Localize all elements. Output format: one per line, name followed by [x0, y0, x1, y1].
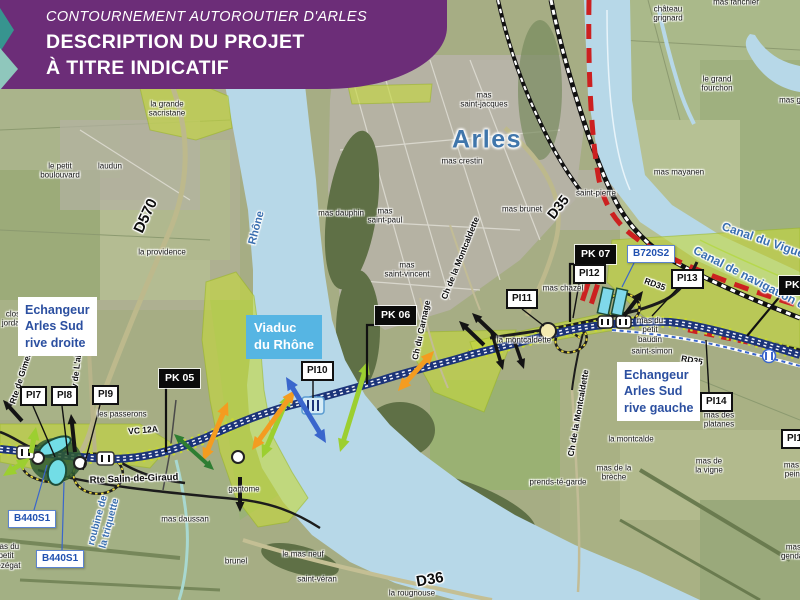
water-label-rh-ne: Rhône — [246, 210, 267, 246]
place-label-mas-du-petit-tr-z-gat: mas du petit trézégat — [0, 542, 20, 570]
place-label-mas-daussan: mas daussan — [161, 514, 209, 523]
road-label-ch-de-la-montcaldette: Ch de la Montcaldette — [439, 215, 481, 300]
road-label-d36: D36 — [415, 569, 445, 591]
pk-06-marker: PK 06 — [375, 306, 416, 325]
place-label-mas-brunet: mas brunet — [502, 204, 542, 213]
viaduc-du-rhone: Viaduc du Rhône — [246, 315, 322, 359]
echangeur-arles-sud-rive-gauche: Echangeur Arles Sud rive gauche — [617, 362, 700, 421]
place-label-saint-simon: saint-simon — [632, 346, 673, 355]
place-label-le-grand-fourchon: le grand fourchon — [701, 75, 732, 94]
place-label-mas-dauphin: mas dauphin — [318, 208, 364, 217]
place-label-la-providence: la providence — [138, 247, 186, 256]
road-label-d570: D570 — [130, 196, 161, 236]
pi12-marker: PI12 — [573, 264, 606, 284]
place-label-mas-crestin: mas crestin — [442, 156, 483, 165]
place-label-mas-g: mas g — [779, 95, 800, 104]
place-label-mas-chazel: mas chazel — [543, 283, 583, 292]
place-label-brunel: brunel — [225, 556, 247, 565]
label-layer: mas saint-jacquesmas crestinsaint-pierre… — [0, 0, 800, 600]
title-banner: CONTOURNEMENT AUTOROUTIER D'ARLES DESCRI… — [0, 0, 447, 89]
place-label-gantome: gantome — [228, 484, 259, 493]
city-label-arles: Arles — [452, 126, 522, 155]
place-label-mas-du-peintre: mas du peintre — [784, 461, 800, 480]
project-map-screenshot: mas saint-jacquesmas crestinsaint-pierre… — [0, 0, 800, 600]
banner-subtitle: CONTOURNEMENT AUTOROUTIER D'ARLES — [46, 9, 447, 25]
water-label-canal-du-vigueirat: Canal du Vigueirat — [720, 219, 800, 267]
banner-title-line2: À TITRE INDICATIF — [46, 56, 447, 82]
place-label-mas-de-la-vigne: mas de la vigne — [695, 457, 723, 476]
pk-08-marker: PK 08 — [779, 276, 800, 295]
place-label-saint-v-ran: saint-véran — [297, 574, 337, 583]
place-label-la-montcaldette: la montcaldette — [497, 335, 551, 344]
place-label-mas-fanchier: mas fanchier — [713, 0, 759, 7]
pi15-marker: PI15 — [781, 429, 800, 449]
place-label-la-rougnouse: la rougnouse — [389, 588, 435, 597]
place-label-le-mas-neuf: le mas neuf — [282, 549, 323, 558]
pi14-marker: PI14 — [700, 392, 733, 412]
road-label-rd35: RD35 — [643, 276, 667, 293]
place-label-saint-pierre: saint-pierre — [576, 188, 616, 197]
place-label-le-petit-boulouvard: le petit boulouvard — [40, 162, 80, 181]
road-label-ch-de-la-montcaldette: Ch de la Montcaldette — [565, 369, 590, 457]
road-label-vc-12a: VC 12A — [128, 424, 159, 437]
water-label-roubine-de-la-triquette: roubine de la triquette — [86, 494, 122, 549]
place-label-prends-t-garde: prends-té-garde — [530, 477, 587, 486]
road-label-rte-salin-de-giraud: Rte Salin-de-Giraud — [89, 472, 178, 486]
place-label-mas-du-gendarme: mas du gendarme — [781, 543, 800, 562]
pi10-marker: PI10 — [301, 361, 334, 381]
place-label-mas-saint-jacques: mas saint-jacques — [460, 91, 507, 110]
banner-title-line1: DESCRIPTION DU PROJET — [46, 30, 447, 56]
pk-07-marker: PK 07 — [575, 245, 616, 264]
place-label-mas-du-petit-baudin: mas du petit baudin — [637, 316, 663, 344]
pk-05-marker: PK 05 — [159, 369, 200, 388]
place-label-laudun: laudun — [98, 161, 122, 170]
place-label-mas-saint-vincent: mas saint-vincent — [385, 261, 430, 280]
pi7-marker: PI7 — [20, 386, 47, 406]
echangeur-arles-sud-rive-droite: Echangeur Arles Sud rive droite — [18, 297, 97, 356]
place-label-mas-des-platanes: mas des platanes — [704, 411, 734, 430]
pi11-marker: PI11 — [506, 289, 538, 309]
place-label-la-grande-sacristane: la grande sacristane — [149, 100, 185, 119]
place-label-mas-saint-paul: mas saint-paul — [368, 207, 403, 226]
place-label-la-montcalde: la montcalde — [608, 434, 653, 443]
b440s1-marker: B440S1 — [36, 550, 84, 568]
b720s2-marker: B720S2 — [627, 245, 675, 263]
pi8-marker: PI8 — [51, 386, 78, 406]
place-label-les-passerons: les passerons — [97, 409, 146, 418]
road-label-d35: D35 — [544, 192, 573, 222]
place-label-mas-de-la-br-che: mas de la brèche — [597, 464, 632, 483]
pi13-marker: PI13 — [671, 269, 704, 289]
place-label-ch-teau-grignard: château grignard — [653, 5, 682, 24]
place-label-mas-mayanen: mas mayanen — [654, 167, 704, 176]
b440s1-marker: B440S1 — [8, 510, 56, 528]
pi9-marker: PI9 — [92, 385, 119, 405]
